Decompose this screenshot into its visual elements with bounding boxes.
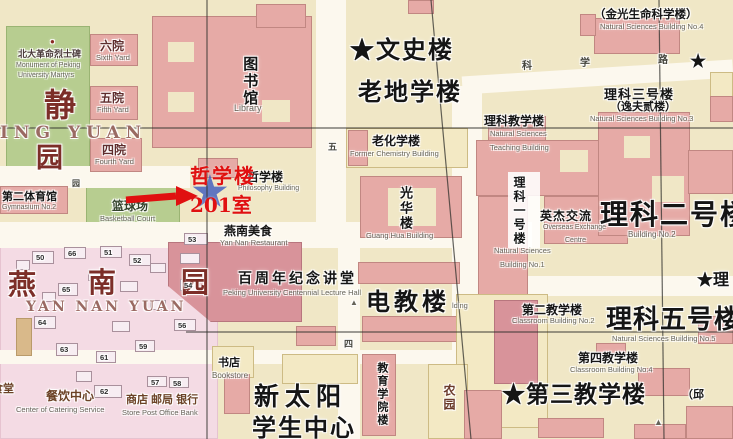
label-like5-en: Natural Sciences Building No.5: [612, 335, 715, 343]
label-liuyuan: 六院: [100, 40, 124, 53]
label-wuyuan-en: Fifth Yard: [97, 106, 129, 114]
label-yannanyuan-en: YAN NAN YUAN: [26, 300, 186, 315]
annotation-building: 哲学楼: [190, 166, 256, 188]
label-partial-qiu: （邱: [682, 390, 704, 402]
label-like4-en: Natural Sciences Building No.4: [600, 23, 703, 31]
label-wuyuan: 五院: [100, 92, 124, 105]
shape-pink-42: [710, 96, 733, 122]
label-bookstore-en: Bookstore: [212, 372, 248, 381]
label-nan: 南: [88, 268, 116, 298]
label-like1: 理科一号楼: [512, 176, 525, 246]
house-number: 52: [133, 257, 141, 265]
library-building: [152, 16, 312, 148]
shape-house-66: [180, 253, 200, 264]
label-siyuan-en: Fourth Yard: [95, 158, 134, 166]
shape-pink-54: [464, 390, 502, 439]
shape-hole-18: [262, 100, 290, 122]
label-xintaiyang: 新太阳: [254, 384, 347, 411]
label-jiaoyuxueyuan: 教育学院楼: [375, 362, 387, 427]
label-jingyuan-en: JING YUAN: [0, 124, 147, 142]
house-number: 65: [62, 286, 70, 294]
label-canyin: 餐饮中心: [46, 390, 94, 403]
label-like1-en1: Natural Sciences: [494, 247, 551, 255]
label-monument-en2: University Martyrs: [18, 72, 74, 80]
label-monument-dot: ●: [50, 38, 55, 47]
shape-house-79: [112, 321, 130, 332]
label-canyin-en: Center of Catering Service: [16, 406, 104, 414]
new-sun-student-center-building: [282, 354, 358, 384]
label-guanghua-en: Guang Hua Building: [366, 232, 433, 240]
shape-pink-23: [348, 130, 368, 166]
label-nongyuan: 农园: [442, 384, 455, 412]
label-jing: 静: [44, 88, 76, 123]
label-monument: 北大革命烈士碑: [18, 50, 81, 60]
label-basketball-en: Basketball Court: [100, 215, 155, 223]
label-like3: 理科三号楼: [604, 88, 674, 102]
label-jiao4-en: Classroom Building No.4: [570, 366, 653, 374]
label-shops-en: Store Post Office Bank: [122, 409, 198, 417]
label-like4: （金光生命科学楼）: [594, 9, 698, 21]
shape-hole-17: [168, 92, 194, 112]
shape-pink-55: [686, 406, 733, 439]
label-yingjie: 英杰交流: [540, 210, 592, 223]
house-number: 56: [178, 322, 186, 330]
star-top-right: ★: [690, 52, 706, 71]
road-char-si: 四: [344, 340, 353, 350]
label-laohuaxue: 老化学楼: [372, 135, 420, 148]
shape-pink-34: [688, 150, 733, 194]
road-char-ke: 科: [522, 62, 532, 73]
label-jiao2: 第二教学楼: [522, 304, 582, 317]
house-number: 64: [38, 319, 46, 327]
shape-pink-51: [296, 326, 336, 346]
shape-house-77: [150, 263, 166, 273]
label-siyuan: 四院: [102, 144, 126, 157]
house-number: 58: [173, 380, 181, 388]
house-number: 66: [68, 250, 76, 258]
label-triangle-dian: ▲: [350, 299, 358, 308]
label-centennial-en: Peking University Centennial Lecture Hal…: [223, 289, 361, 297]
shape-hole-16: [168, 42, 194, 62]
shape-house-76: [120, 281, 138, 292]
label-liuyuan-en: Sixth Yard: [96, 54, 130, 62]
label-triangle-se: ▲: [654, 418, 663, 428]
house-number: 59: [139, 343, 147, 351]
label-shops: 商店 邮局 银行: [126, 395, 198, 407]
road-char-xue: 学: [580, 59, 590, 70]
shape-pink-57: [538, 418, 604, 438]
label-jiao4: 第四教学楼: [578, 352, 638, 365]
label-yannanmeishi-en: Yan Nan Restaurant: [220, 239, 287, 247]
label-laohuaxue-en: Former Chemistry Building: [350, 150, 439, 158]
label-likejiaoxue-en1: Natural Sciences: [490, 130, 547, 138]
label-like3-b: （逸夫贰楼）: [610, 102, 676, 114]
shape-hole-36: [624, 136, 650, 158]
audio-visual-building-north: [358, 262, 460, 284]
label-likejiaoxue: 理科教学楼: [484, 115, 544, 128]
label-like2-en: Building No.2: [628, 231, 676, 240]
label-jiao3: ★第三教学楼: [502, 382, 646, 407]
house-number: 61: [100, 354, 108, 362]
shape-pink-20: [408, 0, 434, 14]
house-number: 57: [151, 379, 159, 387]
label-guanghua: 光华楼: [398, 186, 412, 231]
label-likejiaoxue-en2: Teaching Building: [490, 144, 549, 152]
label-canteen-partial: 食堂: [0, 384, 14, 396]
label-yannanmeishi: 燕南美食: [224, 225, 272, 238]
label-dianjiaolou: 电教楼: [366, 290, 450, 316]
star-mid-right: ★理: [697, 272, 729, 289]
label-yuan: 园: [36, 144, 63, 173]
road-char-wu: 五: [328, 143, 337, 153]
label-yingjie-en2: Centre: [565, 237, 586, 245]
house-number: 54: [184, 282, 192, 290]
label-wenshilou: ★文史楼: [350, 38, 454, 64]
label-monument-en1: Monument of Peking: [16, 62, 80, 70]
label-like3-en: Natural Sciences Building No.3: [590, 115, 693, 123]
house-number: 63: [60, 346, 68, 354]
label-yan: 燕: [8, 270, 36, 300]
label-library-cn: 图书馆: [241, 56, 257, 107]
road-char-lu: 路: [658, 56, 668, 67]
annotation-room: 201室: [190, 195, 252, 217]
label-centennial: 百周年纪念讲堂: [238, 271, 357, 286]
label-gym2-en: Gymnasium No.2: [2, 204, 56, 212]
shape-pink-19: [256, 4, 306, 28]
campus-map: ★★文史楼老地学楼电教楼理科二号楼理科五号楼★第三教学楼新太阳学生中心图书馆Li…: [0, 0, 733, 439]
label-lding-fragment: lding: [452, 302, 468, 310]
house-number: 53: [188, 236, 196, 244]
label-jiao2-en: Classroom Building No.2: [512, 317, 595, 325]
shape-house-80: [76, 371, 92, 382]
label-like2: 理科二号楼: [600, 200, 733, 230]
label-laodixuelou: 老地学楼: [358, 80, 462, 106]
label-xueshengzhongxin: 学生中心: [252, 416, 356, 439]
label-like5: 理科五号楼: [606, 305, 733, 333]
shape-tan-58: [16, 318, 32, 356]
label-yingjie-en1: Overseas Exchange: [543, 224, 606, 232]
road-char-yuan: 园: [72, 180, 80, 189]
house-number: 50: [36, 254, 44, 262]
label-like1-en2: Building No.1: [500, 261, 545, 269]
label-bookstore: 书店: [218, 358, 240, 370]
label-library-en: Library: [234, 104, 262, 114]
house-number: 62: [100, 388, 108, 396]
shape-hole-35: [560, 150, 588, 172]
house-number: 51: [104, 249, 112, 257]
label-basketball: 篮球场: [112, 200, 148, 213]
label-gym2: 第二体育馆: [2, 192, 57, 204]
road-vertical-library-east: [316, 0, 346, 232]
